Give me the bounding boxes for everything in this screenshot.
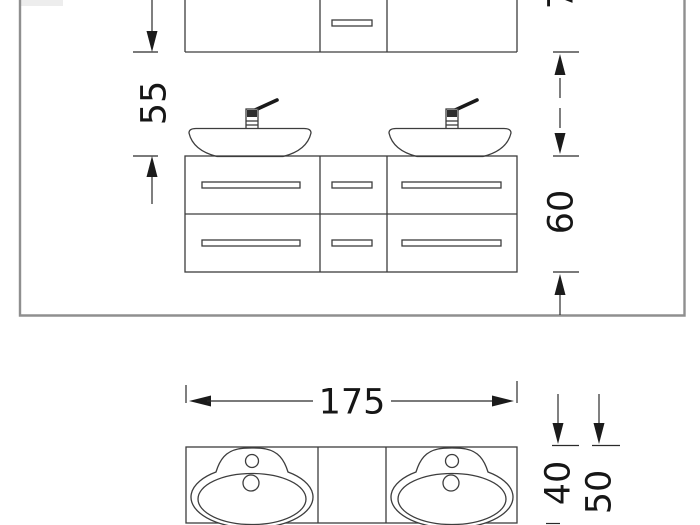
drawer-handle	[202, 240, 300, 246]
tap-hole	[246, 455, 259, 468]
elevation-view: 55 70 60	[20, 0, 685, 316]
drawer-handle	[402, 240, 501, 246]
dim-arrow-down	[594, 423, 605, 444]
elevation-frame	[20, 0, 685, 316]
dim-label-total-depth: 50	[579, 470, 619, 515]
faucet-right	[446, 100, 477, 131]
dimension-right-column: 70 60	[541, 0, 581, 315]
dimension-width-175: 175	[186, 381, 517, 422]
drawer-handle	[332, 182, 372, 188]
dim-arrow-down	[147, 31, 158, 52]
vessel-sink-left	[189, 129, 311, 157]
drawer-handle	[332, 240, 372, 246]
dim-arrow-down	[553, 423, 564, 444]
dimension-total-depth-50: 50	[579, 394, 620, 514]
vanity-cabinet	[185, 156, 517, 272]
vanity-drawing-svg: 55 70 60	[0, 0, 700, 525]
faucet-left	[246, 100, 277, 131]
drawer-handle	[202, 182, 300, 188]
dim-label-counter-depth: 40	[538, 461, 578, 506]
dimension-counter-depth-40: 40	[538, 394, 579, 524]
dim-label-width: 175	[319, 382, 386, 422]
basin-right-plan	[391, 448, 513, 525]
dim-arrow-up	[555, 274, 566, 295]
dim-arrow-up	[555, 54, 566, 75]
tap-hole	[446, 455, 459, 468]
faucet-head	[247, 110, 257, 117]
plan-view: 175	[186, 381, 620, 525]
vessel-sink-right	[389, 129, 511, 157]
faucet-head	[447, 110, 457, 117]
drain-hole	[443, 475, 459, 491]
dim-label-top-cropped: 70	[541, 0, 581, 9]
dim-label-vanity-height: 60	[541, 190, 581, 235]
drawer-handle	[402, 182, 501, 188]
dim-arrow-up	[147, 156, 158, 177]
dim-arrow-right	[492, 396, 514, 407]
dimension-gap-55: 55	[133, 0, 174, 204]
dim-arrow-down	[555, 133, 566, 154]
basin-left-plan	[191, 448, 313, 525]
dim-label-gap: 55	[134, 81, 174, 126]
drain-hole	[243, 475, 259, 491]
technical-drawing-canvas: 55 70 60	[0, 0, 700, 525]
mirror-cabinet	[185, 0, 517, 52]
mirror-cabinet-handle	[332, 20, 372, 26]
